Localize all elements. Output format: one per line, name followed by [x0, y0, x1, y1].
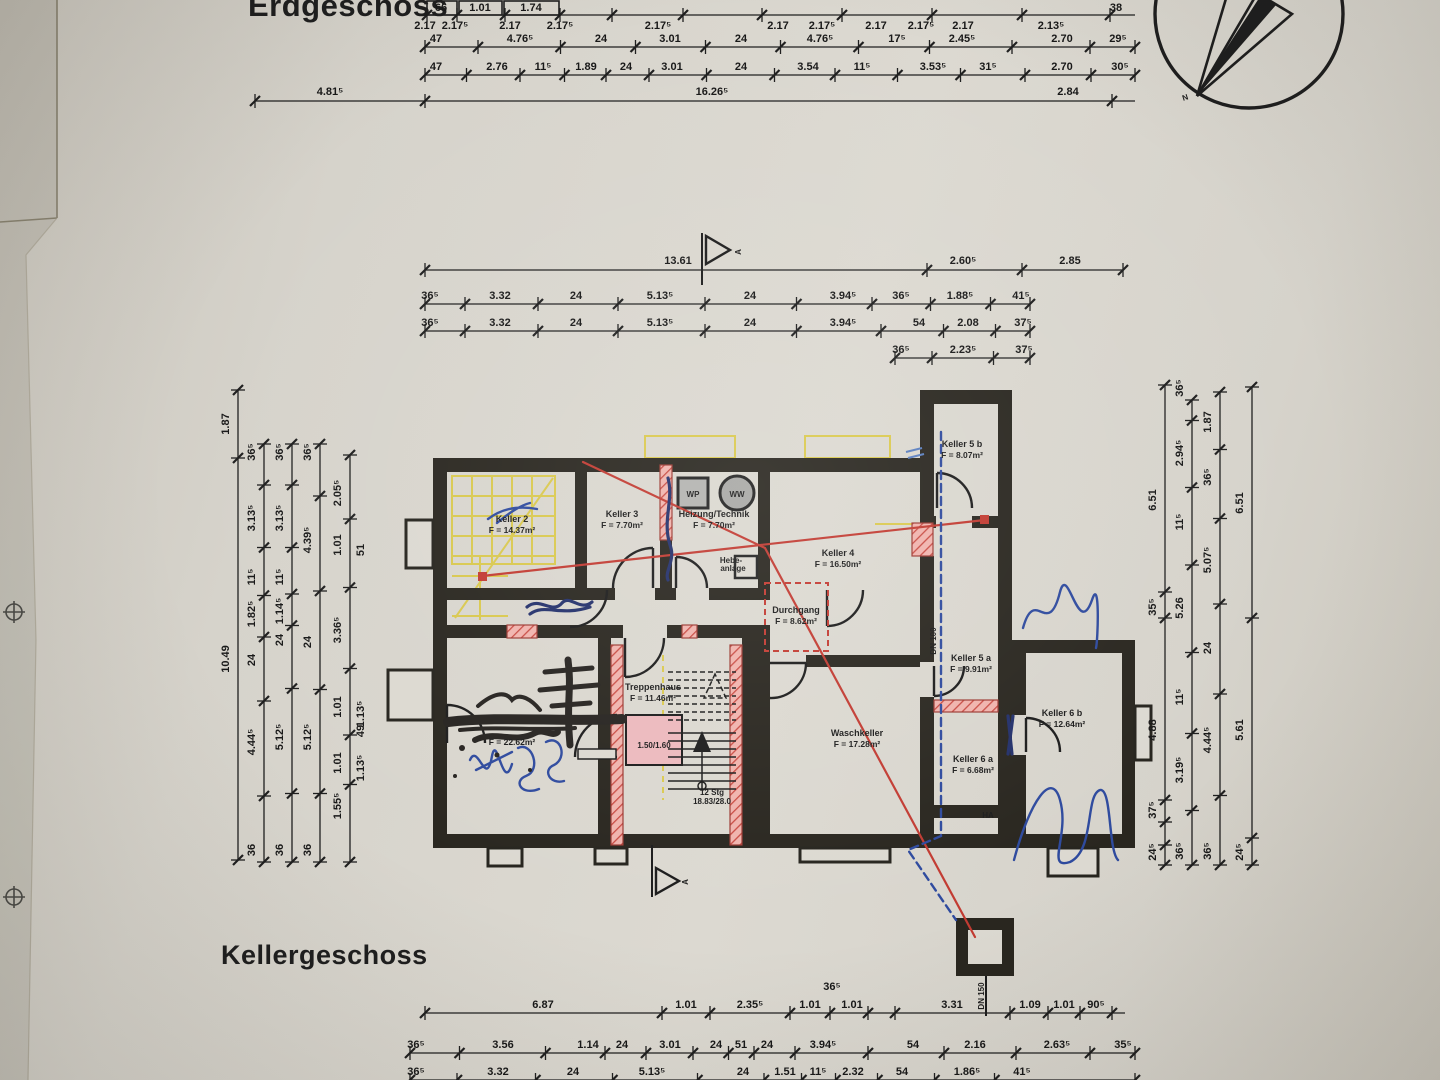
svg-text:2.70: 2.70 [1051, 61, 1072, 73]
svg-text:F = 8.62m²: F = 8.62m² [775, 616, 817, 626]
room-label: TreppenhausF = 11.46m² [625, 682, 681, 703]
svg-text:29⁵: 29⁵ [1109, 33, 1126, 45]
room-label: Keller 6 bF = 12.64m² [1039, 708, 1086, 729]
room-label: Keller 4F = 16.50m² [815, 548, 862, 569]
svg-text:51: 51 [355, 544, 367, 556]
drawing-canvas: 661.011.74382.172.17⁵2.172.17⁵2.17⁵2.172… [0, 0, 1440, 1080]
svg-text:36⁵: 36⁵ [274, 443, 286, 460]
svg-text:3.01: 3.01 [659, 1039, 680, 1051]
annotation-text: DN 100 [929, 627, 938, 655]
svg-text:35⁵: 35⁵ [1114, 1039, 1131, 1051]
svg-text:2.17⁵: 2.17⁵ [809, 20, 836, 32]
svg-text:30⁵: 30⁵ [1111, 61, 1128, 73]
svg-text:36⁵: 36⁵ [407, 1066, 424, 1078]
svg-text:F = 8.07m²: F = 8.07m² [941, 450, 983, 460]
svg-text:2.45⁵: 2.45⁵ [949, 33, 976, 45]
svg-text:3.32: 3.32 [489, 317, 510, 329]
svg-text:5.61: 5.61 [1234, 719, 1246, 740]
svg-text:Keller 5 b: Keller 5 b [942, 439, 983, 449]
svg-text:24: 24 [744, 317, 757, 329]
svg-text:1.13⁵: 1.13⁵ [355, 755, 367, 782]
svg-text:36⁵: 36⁵ [421, 317, 438, 329]
svg-text:3.01: 3.01 [659, 33, 680, 45]
svg-text:5.12⁵: 5.12⁵ [274, 724, 286, 751]
svg-text:Keller 2: Keller 2 [496, 514, 529, 524]
svg-text:2.85: 2.85 [1059, 255, 1080, 267]
floor-plan-scan: Erdgeschoss Kellergeschoss [0, 0, 1440, 1080]
svg-text:36: 36 [302, 844, 314, 856]
room-label: F = 22.62m² [489, 737, 536, 747]
dim-chain-h: 36⁵3.32245.13⁵243.94⁵542.0837⁵ [420, 317, 1035, 338]
svg-text:5.13⁵: 5.13⁵ [639, 1066, 666, 1078]
svg-text:3.36⁵: 3.36⁵ [332, 617, 344, 644]
svg-text:1.74: 1.74 [520, 2, 542, 14]
svg-text:F = 12.64m²: F = 12.64m² [1039, 719, 1086, 729]
dim-chain-h: 13.612.60⁵2.85 [420, 255, 1128, 277]
svg-text:2.94⁵: 2.94⁵ [1174, 440, 1186, 467]
svg-text:1.01: 1.01 [469, 2, 490, 14]
svg-text:38: 38 [1110, 2, 1122, 14]
dim-chain-v: 36⁵3.13⁵11⁵1.82⁵244.44⁵36 [246, 439, 271, 867]
svg-text:24: 24 [567, 1066, 580, 1078]
svg-text:2.17: 2.17 [414, 20, 435, 32]
svg-text:11⁵: 11⁵ [274, 569, 286, 586]
svg-text:3.19⁵: 3.19⁵ [1174, 757, 1186, 784]
dim-chain-v: 36⁵4.39⁵245.12⁵36 [302, 439, 327, 867]
svg-text:1.01: 1.01 [332, 534, 344, 555]
svg-text:1.51: 1.51 [774, 1066, 795, 1078]
svg-text:47: 47 [430, 61, 442, 73]
svg-text:2.17: 2.17 [499, 20, 520, 32]
svg-text:11⁵: 11⁵ [810, 1066, 827, 1078]
svg-text:31⁵: 31⁵ [979, 61, 996, 73]
svg-text:54: 54 [896, 1066, 909, 1078]
dim-chain-h: 4.81⁵16.26⁵2.84 [250, 86, 1135, 108]
dim-chain-h: 36⁵2.23⁵37⁵ [890, 344, 1035, 365]
svg-text:1.87: 1.87 [1202, 411, 1214, 432]
svg-text:3.94⁵: 3.94⁵ [810, 1039, 837, 1051]
svg-text:16.26⁵: 16.26⁵ [696, 86, 729, 98]
svg-text:36: 36 [246, 844, 258, 856]
svg-text:24: 24 [620, 61, 633, 73]
svg-text:6.87: 6.87 [532, 999, 553, 1011]
dim-chain-h: 36⁵3.561.14243.012451243.94⁵542.162.63⁵3… [405, 1039, 1140, 1060]
svg-text:37⁵: 37⁵ [1014, 317, 1031, 329]
svg-text:24⁵: 24⁵ [1234, 843, 1246, 860]
svg-text:41⁵: 41⁵ [1013, 1066, 1030, 1078]
svg-text:2.16: 2.16 [964, 1039, 985, 1051]
svg-text:F = 7.70m²: F = 7.70m² [693, 520, 735, 530]
paper-edge-artifacts [0, 0, 57, 1080]
svg-text:11⁵: 11⁵ [535, 61, 552, 73]
svg-text:3.54: 3.54 [797, 61, 819, 73]
svg-text:F = 22.62m²: F = 22.62m² [489, 737, 536, 747]
section-letter: A [734, 249, 743, 255]
svg-text:1.14: 1.14 [577, 1039, 599, 1051]
svg-text:37⁵: 37⁵ [1015, 344, 1032, 356]
svg-text:2.17⁵: 2.17⁵ [908, 20, 935, 32]
room-label: Heizung/TechnikF = 7.70m² [679, 509, 751, 530]
svg-text:3.53⁵: 3.53⁵ [920, 61, 947, 73]
dim-chain-v: 36⁵2.94⁵11⁵5.2611⁵3.19⁵36⁵ [1174, 379, 1199, 870]
svg-text:4.44⁵: 4.44⁵ [1202, 727, 1214, 754]
svg-text:2.17: 2.17 [767, 20, 788, 32]
svg-text:11⁵: 11⁵ [1174, 689, 1186, 706]
svg-text:35⁵: 35⁵ [1147, 598, 1159, 615]
svg-text:3.56: 3.56 [492, 1039, 513, 1051]
svg-text:3.32: 3.32 [487, 1066, 508, 1078]
svg-text:11⁵: 11⁵ [246, 569, 258, 586]
dim-chain-h: 661.011.7438 [422, 1, 1135, 22]
svg-text:Keller 6 a: Keller 6 a [953, 754, 994, 764]
room-label: Keller 3F = 7.70m² [601, 509, 643, 530]
annotation-text: 12 Stg [700, 788, 724, 797]
svg-text:1.01: 1.01 [799, 999, 820, 1011]
svg-text:36⁵: 36⁵ [302, 443, 314, 460]
svg-text:2.84: 2.84 [1057, 86, 1079, 98]
svg-text:F = 17.28m²: F = 17.28m² [834, 739, 881, 749]
svg-text:1.13⁵: 1.13⁵ [355, 701, 367, 728]
svg-text:36⁵: 36⁵ [1174, 842, 1186, 859]
svg-text:4.39⁵: 4.39⁵ [302, 527, 314, 554]
svg-text:24⁵: 24⁵ [1147, 843, 1159, 860]
svg-text:4.76⁵: 4.76⁵ [507, 33, 534, 45]
annotation-text: WW [729, 490, 745, 499]
svg-text:24: 24 [735, 33, 748, 45]
svg-text:Keller 5 a: Keller 5 a [951, 653, 992, 663]
svg-text:Keller 6 b: Keller 6 b [1042, 708, 1083, 718]
dimension-annotations: 661.011.74382.172.17⁵2.172.17⁵2.17⁵2.172… [220, 1, 1259, 1080]
svg-text:4.81⁵: 4.81⁵ [317, 86, 344, 98]
svg-text:2.60⁵: 2.60⁵ [950, 255, 977, 267]
svg-text:4.44⁵: 4.44⁵ [246, 729, 258, 756]
svg-text:2.23⁵: 2.23⁵ [950, 344, 977, 356]
svg-text:F = 16.50m²: F = 16.50m² [815, 559, 862, 569]
svg-text:24: 24 [274, 633, 286, 646]
svg-text:2.17: 2.17 [865, 20, 886, 32]
svg-text:3.13⁵: 3.13⁵ [246, 505, 258, 532]
svg-text:Treppenhaus: Treppenhaus [625, 682, 681, 692]
svg-text:90⁵: 90⁵ [1087, 999, 1104, 1011]
svg-text:36⁵: 36⁵ [1202, 468, 1214, 485]
room-label: Keller 2F = 14.37m² [489, 514, 536, 535]
dim-chain-v: 2.05⁵1.013.36⁵1.011.011.55⁵511.13⁵491.13… [332, 450, 367, 867]
room-label: WaschkellerF = 17.28m² [831, 728, 884, 749]
svg-text:5.07⁵: 5.07⁵ [1202, 547, 1214, 574]
dim-chain-v: 1.8710.49 [220, 385, 245, 865]
annotation-text: 18.83/28.0 [693, 797, 731, 806]
room-label: Keller 6 aF = 6.68m² [952, 754, 994, 775]
dim-chain-v: 6.515.6124⁵ [1234, 382, 1259, 870]
svg-text:1.01: 1.01 [1053, 999, 1074, 1011]
svg-text:36⁵: 36⁵ [1202, 842, 1214, 859]
svg-text:2.08: 2.08 [957, 317, 978, 329]
svg-text:Durchgang: Durchgang [772, 605, 820, 615]
svg-text:24: 24 [744, 290, 757, 302]
svg-text:47: 47 [430, 33, 442, 45]
svg-text:24: 24 [570, 290, 583, 302]
svg-text:Waschkeller: Waschkeller [831, 728, 884, 738]
svg-text:24: 24 [735, 61, 748, 73]
svg-text:36⁵: 36⁵ [892, 290, 909, 302]
annotation-text: DN 150 [977, 982, 986, 1010]
svg-text:1.09: 1.09 [1019, 999, 1040, 1011]
svg-text:F = 7.70m²: F = 7.70m² [601, 520, 643, 530]
svg-text:Keller 3: Keller 3 [606, 509, 639, 519]
svg-text:36⁵: 36⁵ [892, 344, 909, 356]
svg-text:1.01: 1.01 [841, 999, 862, 1011]
svg-text:3.13⁵: 3.13⁵ [274, 505, 286, 532]
svg-text:36⁵: 36⁵ [246, 443, 258, 460]
svg-text:17⁵: 17⁵ [888, 33, 905, 45]
svg-text:5.13⁵: 5.13⁵ [647, 317, 674, 329]
svg-text:2.13⁵: 2.13⁵ [1038, 20, 1065, 32]
svg-text:36⁵: 36⁵ [823, 981, 840, 993]
svg-text:36⁵: 36⁵ [1174, 379, 1186, 396]
svg-text:51: 51 [735, 1039, 747, 1051]
dim-chain-h: 474.76⁵243.01244.76⁵17⁵2.45⁵2.7029⁵ [420, 33, 1140, 54]
svg-text:5.26: 5.26 [1174, 597, 1186, 618]
svg-text:3.94⁵: 3.94⁵ [830, 290, 857, 302]
room-label: Keller 5 bF = 8.07m² [941, 439, 983, 460]
dim-chain-h: 6.871.012.35⁵1.011.013.311.091.0190⁵ [420, 999, 1125, 1020]
svg-text:49: 49 [355, 725, 367, 737]
dim-chain-h: 36⁵3.32245.13⁵241.5111⁵2.32541.86⁵41⁵ [405, 1066, 1140, 1080]
svg-text:3.94⁵: 3.94⁵ [830, 317, 857, 329]
svg-text:Keller 4: Keller 4 [822, 548, 855, 558]
svg-text:1.88⁵: 1.88⁵ [947, 290, 974, 302]
svg-text:1.82⁵: 1.82⁵ [246, 601, 258, 628]
dim-chain-v: 6.5135⁵4.8837⁵24⁵ [1147, 380, 1172, 870]
svg-text:41⁵: 41⁵ [1012, 290, 1029, 302]
svg-text:37⁵: 37⁵ [1147, 801, 1159, 818]
dim-chain-h: 472.7611⁵1.89243.01243.5411⁵3.53⁵31⁵2.70… [420, 61, 1140, 82]
svg-text:24: 24 [595, 33, 608, 45]
svg-text:24: 24 [710, 1039, 723, 1051]
annotation-text: WP [687, 490, 701, 499]
svg-text:2.17⁵: 2.17⁵ [547, 20, 574, 32]
svg-text:54: 54 [907, 1039, 920, 1051]
svg-text:2.17⁵: 2.17⁵ [442, 20, 469, 32]
svg-text:1.14⁵: 1.14⁵ [274, 598, 286, 625]
svg-text:1.89: 1.89 [575, 61, 596, 73]
compass-north-icon [1155, 0, 1343, 108]
annotation-text: anlage [720, 564, 746, 573]
north-label: N [1181, 92, 1189, 102]
svg-text:1.86⁵: 1.86⁵ [954, 1066, 981, 1078]
svg-text:2.63⁵: 2.63⁵ [1044, 1039, 1071, 1051]
svg-text:24: 24 [246, 653, 258, 666]
svg-text:4.88: 4.88 [1147, 719, 1159, 740]
annotation-text: HA [982, 811, 994, 820]
svg-text:11⁵: 11⁵ [854, 61, 871, 73]
room-label: Keller 5 aF = 9.91m² [950, 653, 992, 674]
svg-text:2.17: 2.17 [952, 20, 973, 32]
svg-text:11⁵: 11⁵ [1174, 514, 1186, 531]
svg-text:F = 14.37m²: F = 14.37m² [489, 525, 536, 535]
svg-text:36: 36 [274, 844, 286, 856]
svg-text:F = 11.46m²: F = 11.46m² [630, 693, 676, 703]
svg-text:24: 24 [761, 1039, 774, 1051]
annotation-text: 1.50/1.60 [637, 741, 671, 750]
svg-text:13.61: 13.61 [664, 255, 692, 267]
svg-text:1.01: 1.01 [332, 696, 344, 717]
svg-text:2.35⁵: 2.35⁵ [737, 999, 764, 1011]
svg-text:6.51: 6.51 [1147, 489, 1159, 510]
svg-text:66: 66 [435, 2, 447, 14]
dim-chain-h: 2.172.17⁵2.172.17⁵2.17⁵2.172.17⁵2.172.17… [414, 20, 1064, 32]
svg-text:1.01: 1.01 [332, 752, 344, 773]
svg-text:2.05⁵: 2.05⁵ [332, 480, 344, 507]
svg-text:24: 24 [570, 317, 583, 329]
svg-text:3.31: 3.31 [941, 999, 962, 1011]
svg-text:6.51: 6.51 [1234, 492, 1246, 513]
svg-text:1.01: 1.01 [675, 999, 696, 1011]
svg-text:2.76: 2.76 [486, 61, 507, 73]
svg-text:24: 24 [1202, 641, 1214, 654]
svg-text:24: 24 [737, 1066, 750, 1078]
svg-text:5.13⁵: 5.13⁵ [647, 290, 674, 302]
svg-text:1.55⁵: 1.55⁵ [332, 793, 344, 820]
svg-text:2.32: 2.32 [842, 1066, 863, 1078]
svg-text:Heizung/Technik: Heizung/Technik [679, 509, 751, 519]
svg-text:3.32: 3.32 [489, 290, 510, 302]
svg-text:36⁵: 36⁵ [407, 1039, 424, 1051]
svg-text:F = 9.91m²: F = 9.91m² [950, 664, 992, 674]
svg-text:F = 6.68m²: F = 6.68m² [952, 765, 994, 775]
svg-text:36⁵: 36⁵ [421, 290, 438, 302]
svg-text:2.17⁵: 2.17⁵ [645, 20, 672, 32]
svg-text:2.70: 2.70 [1051, 33, 1072, 45]
svg-text:10.49: 10.49 [220, 645, 232, 673]
dim-chain-v: 1.8736⁵5.07⁵244.44⁵36⁵ [1202, 387, 1227, 870]
svg-text:4.76⁵: 4.76⁵ [807, 33, 834, 45]
svg-text:24: 24 [302, 635, 314, 648]
svg-text:24: 24 [616, 1039, 629, 1051]
dim-chain-v: 36⁵3.13⁵11⁵1.14⁵245.12⁵36 [274, 439, 299, 867]
svg-text:3.01: 3.01 [661, 61, 682, 73]
dim-chain-h: 36⁵3.32245.13⁵243.94⁵36⁵1.88⁵41⁵ [420, 290, 1035, 311]
section-letter: A [681, 879, 690, 885]
svg-text:5.12⁵: 5.12⁵ [302, 724, 314, 751]
svg-text:54: 54 [913, 317, 926, 329]
svg-text:1.87: 1.87 [220, 413, 232, 434]
room-label: DurchgangF = 8.62m² [772, 605, 820, 626]
